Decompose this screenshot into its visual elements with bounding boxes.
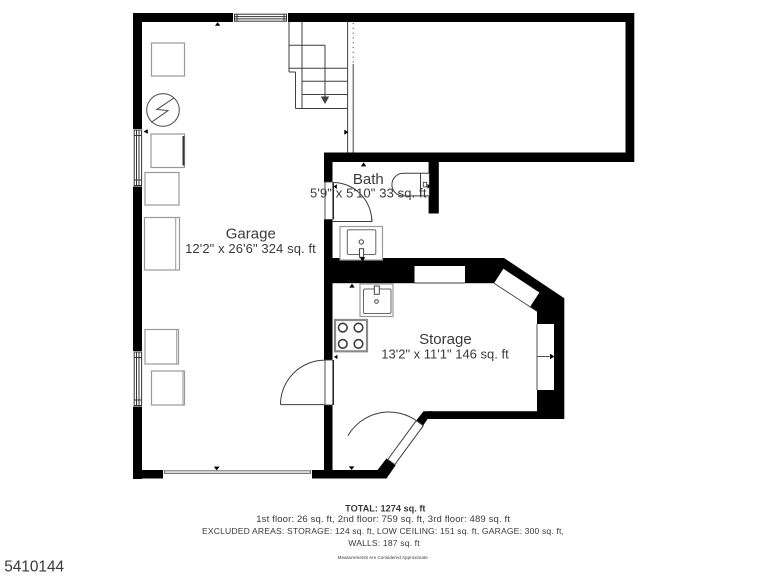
svg-text:13'2" x 11'1" 146 sq. ft: 13'2" x 11'1" 146 sq. ft [381, 347, 509, 362]
svg-text:Storage: Storage [419, 331, 472, 348]
svg-text:1st floor: 26 sq. ft, 2nd floo: 1st floor: 26 sq. ft, 2nd floor: 759 sq.… [256, 514, 510, 525]
svg-text:Measurements Are Considered Ap: Measurements Are Considered Approximate [338, 555, 429, 560]
svg-text:12'2" x 26'6" 324 sq. ft: 12'2" x 26'6" 324 sq. ft [185, 241, 316, 256]
svg-text:TOTAL: 1274 sq. ft: TOTAL: 1274 sq. ft [345, 504, 425, 514]
svg-text:5'9" x 5'10" 33 sq. ft: 5'9" x 5'10" 33 sq. ft [310, 186, 427, 201]
svg-text:5410144: 5410144 [4, 559, 64, 576]
svg-text:Garage: Garage [226, 225, 276, 242]
svg-text:WALLS: 187 sq. ft: WALLS: 187 sq. ft [348, 538, 420, 548]
svg-text:EXCLUDED AREAS: STORAGE: 124 s: EXCLUDED AREAS: STORAGE: 124 sq. ft, LOW… [202, 526, 564, 536]
